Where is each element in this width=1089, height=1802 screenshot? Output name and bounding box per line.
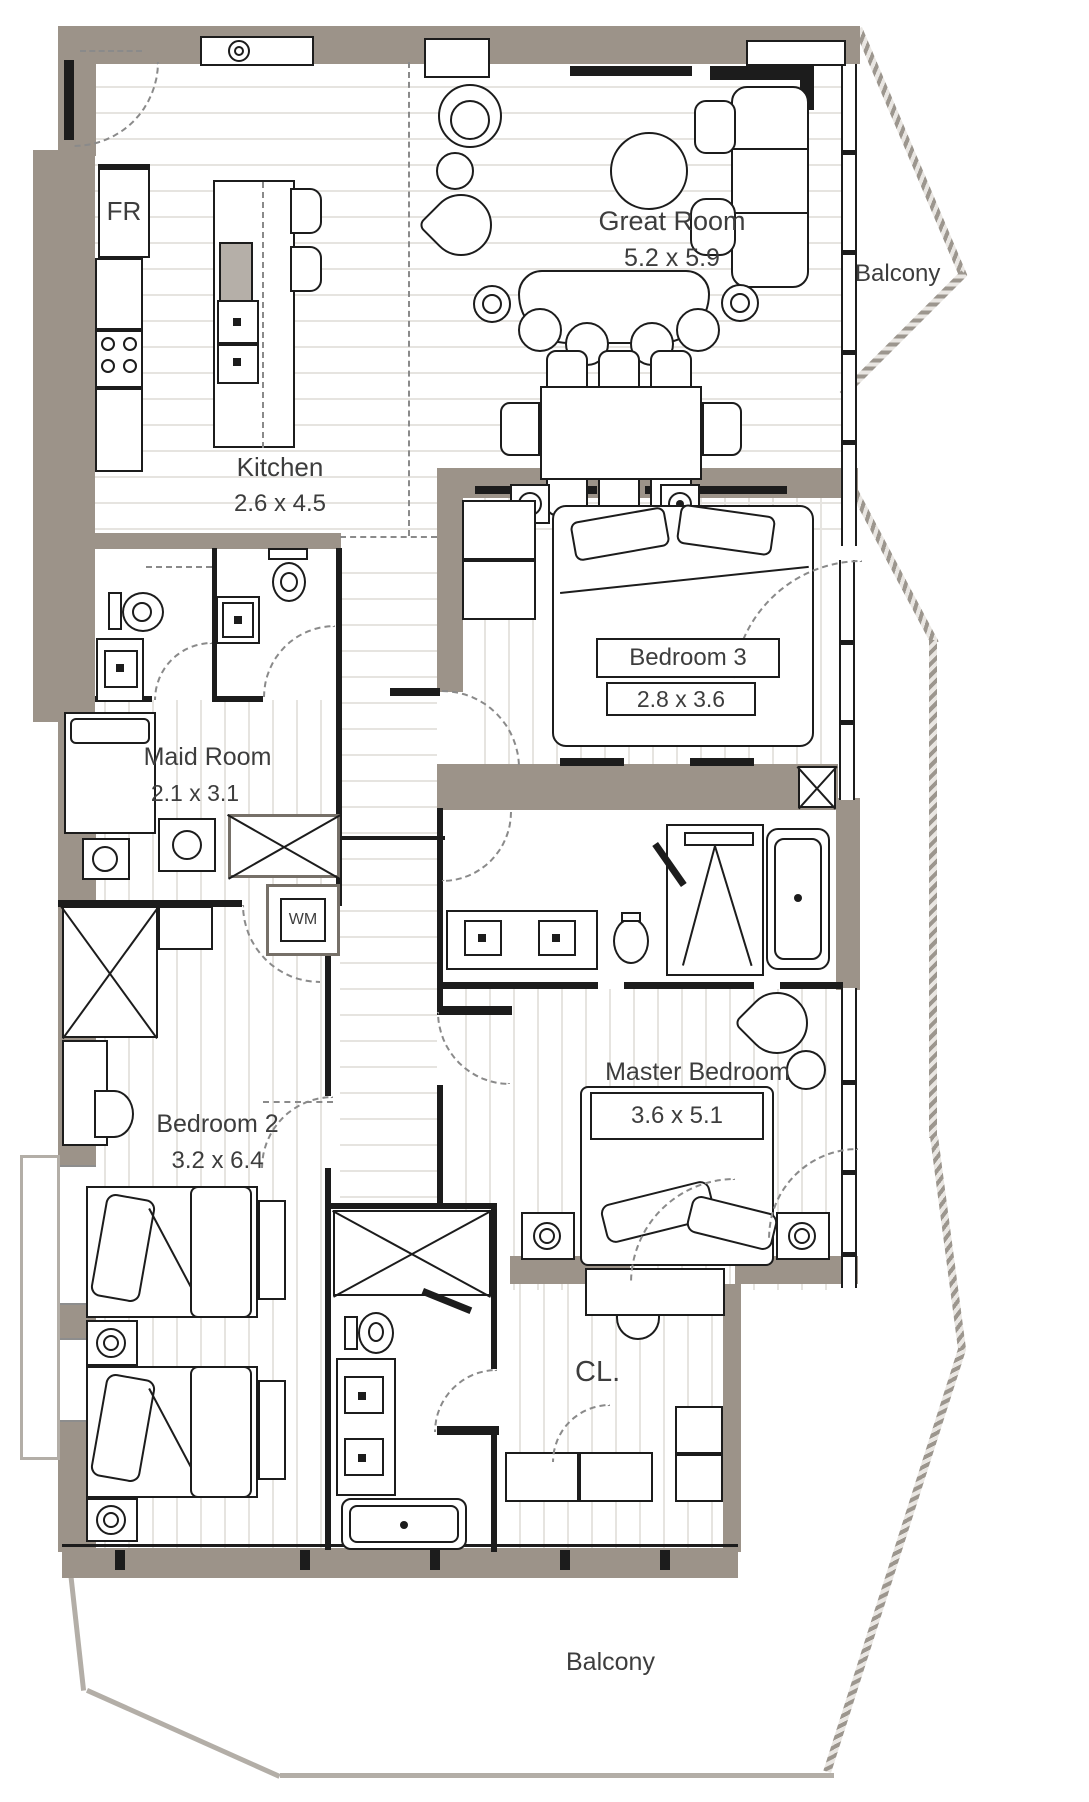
entry-door-leaf (64, 60, 74, 140)
side-table (436, 152, 474, 190)
window-mullion (841, 150, 857, 155)
faucet-icon (478, 934, 486, 942)
kitchen-corridor-boundary (340, 536, 437, 538)
range-hood (200, 36, 314, 66)
curved-sofa-cushion (676, 308, 720, 352)
wall-masterbath-right (836, 798, 860, 990)
faucet-icon (552, 934, 560, 942)
armchair-seat (450, 100, 490, 140)
dining-chair (702, 402, 742, 456)
faucet-icon (116, 664, 124, 672)
toilet-inner (132, 602, 152, 622)
bathB-door-swing (263, 625, 335, 697)
wall-corridor-east-lower (437, 1085, 443, 1207)
toilet-tank (268, 548, 308, 560)
closet-box (675, 1406, 723, 1454)
wall-bath2-east-upper (491, 1203, 497, 1369)
closet-label: CL. (575, 1356, 620, 1389)
faucet-icon (358, 1392, 366, 1400)
great-room-label: Great Room (552, 206, 792, 237)
floor-lamp-icon-inner (482, 294, 502, 314)
dining-chair (650, 350, 692, 388)
bottom-window-tick (430, 1550, 440, 1570)
wall-bath2-east-lower (491, 1432, 497, 1552)
faucet-icon (233, 358, 241, 366)
bottom-window-tick (660, 1550, 670, 1570)
balcony-edge-bottomleft (86, 1688, 281, 1779)
faucet-icon (233, 318, 241, 326)
burner-icon (101, 359, 115, 373)
stool (172, 830, 202, 860)
bath2-door-swing (434, 1369, 497, 1432)
closet-box (675, 1454, 723, 1502)
toilet-tank (621, 912, 641, 922)
window-mullion (841, 1080, 857, 1085)
bed-bench (258, 1200, 286, 1300)
kitchen-label: Kitchen (190, 452, 370, 483)
floor-lamp-icon-inner (730, 293, 750, 313)
dining-chair (546, 350, 588, 388)
lamp-icon-inner (539, 1228, 555, 1244)
wall-masterbath-south (443, 982, 843, 989)
master-bed-headband: 3.6 x 5.1 (590, 1092, 764, 1140)
floor-plan: FR (0, 0, 1089, 1802)
faucet-icon (234, 616, 242, 624)
balcony-bottom-label: Balcony (566, 1648, 655, 1677)
window-master-east (841, 988, 857, 1288)
shower-shelf (684, 832, 754, 846)
island-centerline (262, 182, 264, 448)
toilet-inner (280, 572, 298, 592)
masterbath-door-swing (442, 812, 512, 882)
lamp-icon (92, 846, 118, 872)
greatroom-north-frame-2 (710, 66, 814, 80)
dining-chair (598, 350, 640, 388)
window-mullion (839, 720, 855, 725)
kitchen-counter-upper (95, 258, 143, 330)
wall-bottom (62, 1548, 738, 1578)
lamp-icon-inner (103, 1335, 119, 1351)
bathA-door-swing (154, 642, 212, 700)
curved-sofa-cushion (518, 308, 562, 352)
wall-closet-right (723, 1284, 741, 1552)
bedroom2-label: Bedroom 2 (130, 1110, 305, 1139)
window-mullion (841, 250, 857, 255)
master-bedroom-label: Master Bedroom (590, 1058, 805, 1087)
maid-room-label: Maid Room (115, 743, 300, 772)
bedroom3-wardrobe (462, 560, 536, 620)
wall-kitchen-south (95, 533, 341, 549)
toilet-tank (108, 592, 122, 630)
balcony-rail-right-4 (823, 1348, 966, 1773)
desk-chair (94, 1090, 134, 1138)
maid-room-dims: 2.1 x 3.1 (115, 780, 275, 807)
toilet-tank (344, 1316, 358, 1350)
greatroom-north-frame-1 (570, 66, 692, 76)
bedroom3-wardrobe (462, 500, 536, 560)
window-top-2 (746, 40, 846, 66)
kitchen-greatroom-boundary (408, 62, 410, 536)
balcony-rail-topright-lower (840, 270, 967, 397)
entry-dotted-line (80, 50, 142, 52)
drain-dot (400, 1521, 408, 1529)
window-top-1 (424, 38, 490, 78)
sofa-seam (733, 148, 807, 150)
blanket-band (190, 1366, 252, 1498)
great-room-dims: 5.2 x 5.9 (577, 244, 767, 273)
island-appliance (219, 242, 253, 302)
pillow (70, 718, 150, 744)
round-table (610, 132, 688, 210)
bottom-window-tick (115, 1550, 125, 1570)
burner-icon (123, 359, 137, 373)
sofa-cushion (694, 100, 736, 154)
balcony-rail-right-3 (930, 1136, 966, 1351)
wall-bathB-south (212, 696, 263, 702)
wall-bedroom3-left (437, 468, 463, 692)
lamp-icon-inner (103, 1512, 119, 1528)
bedroom3-door-leaf (390, 688, 440, 696)
window-mullion (841, 1252, 857, 1257)
balcony-right-label: Balcony (855, 260, 940, 288)
bedroom2-door-dotted (263, 1101, 333, 1103)
burner-icon (101, 337, 115, 351)
bed-bench (258, 1380, 286, 1480)
faucet-icon (358, 1454, 366, 1462)
bar-chair (290, 246, 322, 292)
bedroom3-label: Bedroom 3 (596, 638, 780, 678)
bottom-window-tick (560, 1550, 570, 1570)
hall-threshold-1 (560, 758, 624, 766)
blanket-band (190, 1186, 252, 1318)
masterbath-south-gap (754, 982, 780, 989)
kitchen-counter-lower (95, 388, 143, 472)
bar-chair (290, 188, 322, 234)
wall-left-main (33, 150, 95, 722)
wall-bath2-north (330, 1203, 497, 1209)
bay-strip-west (20, 1155, 60, 1460)
corridor-floor (340, 548, 437, 1205)
balcony-edge-bottom (280, 1773, 834, 1778)
wall-hall-band (437, 764, 838, 810)
bedroom3-dims: 2.8 x 3.6 (606, 682, 756, 716)
cabinet (158, 906, 213, 950)
bathA-dotted-line (146, 566, 212, 568)
wall-bedroom2-east-lower (325, 1168, 331, 1550)
kitchen-dims: 2.6 x 4.5 (190, 490, 370, 518)
window-greatroom-east (841, 64, 857, 546)
masterbath-south-gap (598, 982, 624, 989)
bottom-window-tick (300, 1550, 310, 1570)
burner-icon (123, 337, 137, 351)
window-mullion (841, 440, 857, 445)
window-mullion (841, 350, 857, 355)
bedroom2-dims: 3.2 x 6.4 (140, 1147, 295, 1175)
hall-threshold-2 (690, 758, 754, 766)
drain-dot (794, 894, 802, 902)
dining-chair (500, 402, 540, 456)
balcony-rail-right-2 (929, 640, 937, 1138)
toilet (613, 918, 649, 964)
balcony-rail-right-1 (849, 486, 939, 645)
toilet-inner (368, 1322, 384, 1342)
hood-vent-icon-inner (234, 46, 244, 56)
balcony-rail-topright-upper (855, 27, 968, 279)
fridge-label: FR (98, 196, 150, 227)
dining-table (540, 386, 702, 480)
balcony-edge-left (68, 1572, 86, 1691)
